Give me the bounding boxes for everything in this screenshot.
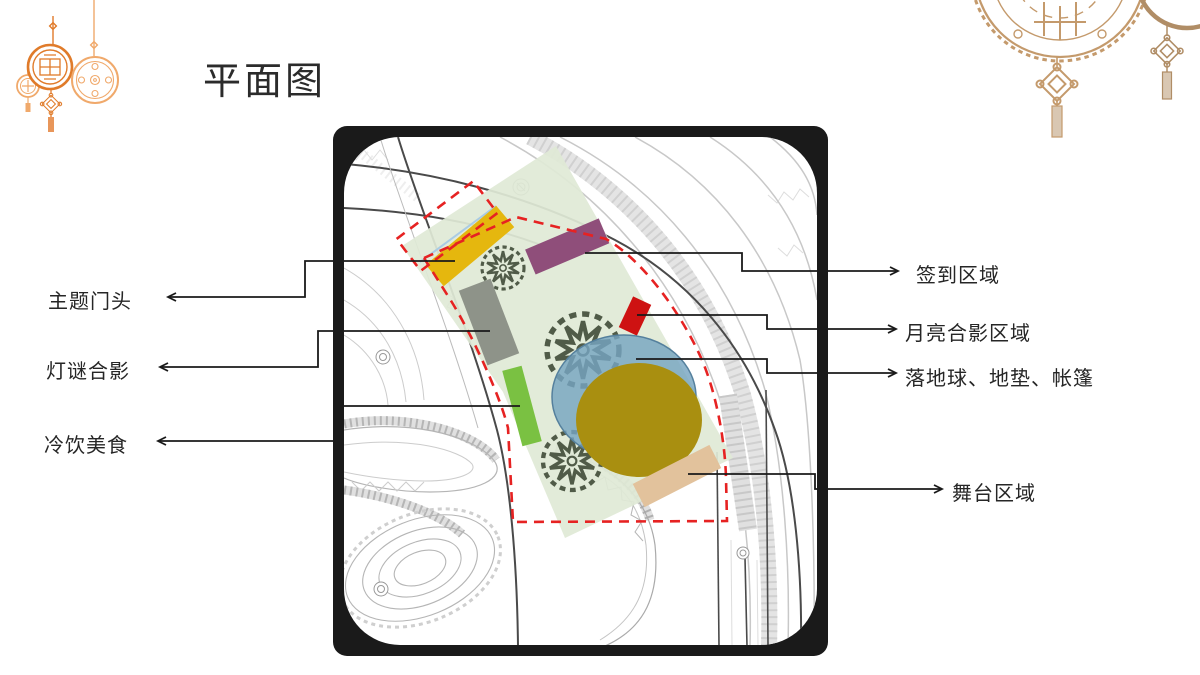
label-cold-drinks: 冷饮美食 xyxy=(44,429,128,458)
ring-ornament-icon xyxy=(1137,0,1200,99)
label-theme-gate: 主题门头 xyxy=(48,285,132,314)
label-sign-in: 签到区域 xyxy=(916,259,1000,288)
label-lantern-riddle: 灯谜合影 xyxy=(46,355,130,384)
label-ground-globe: 落地球、地垫、帐篷 xyxy=(905,362,1094,391)
mooncake-ornaments-right xyxy=(971,0,1200,137)
label-moon-photo: 月亮合影区域 xyxy=(905,317,1031,346)
chinese-knot-icon xyxy=(40,89,61,132)
medium-medallion-icon xyxy=(28,45,72,89)
chinese-knot-icon xyxy=(1037,56,1078,137)
mooncake-icon xyxy=(971,0,1149,61)
label-stage: 舞台区域 xyxy=(952,477,1036,506)
slide: 平面图 主题门头 灯谜合影 冷饮美食 签到区域 月亮合影区域 落地球、地垫、帐篷… xyxy=(0,0,1200,675)
page-title: 平面图 xyxy=(203,50,326,105)
lantern-ornaments-left xyxy=(17,0,118,132)
large-medallion-icon xyxy=(72,57,118,103)
plan-map xyxy=(322,126,828,656)
